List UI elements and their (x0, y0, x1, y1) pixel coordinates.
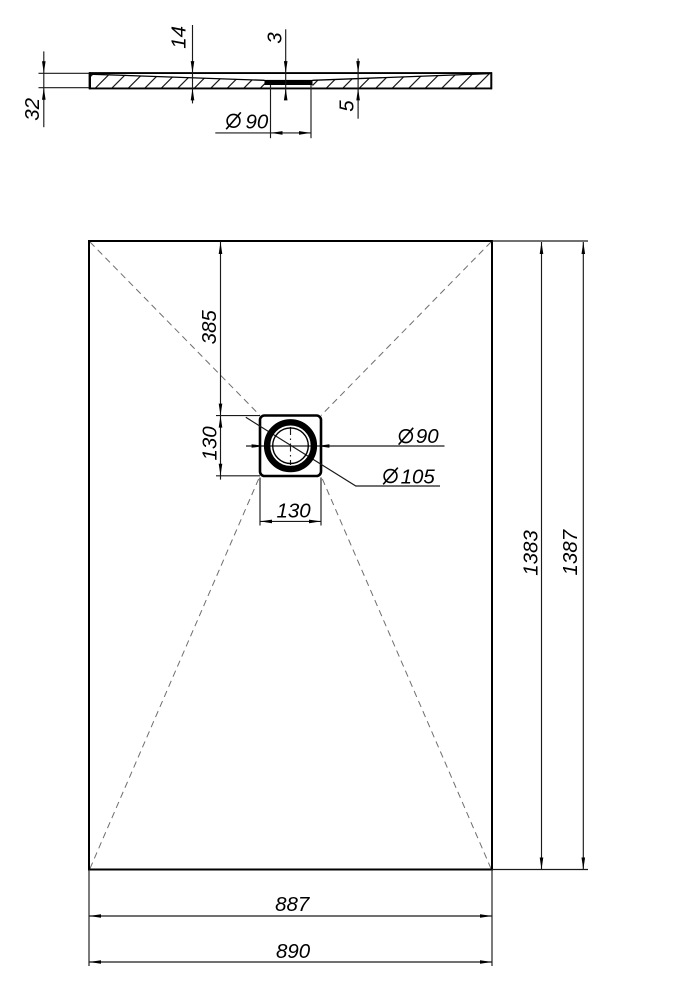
svg-text:105: 105 (401, 466, 436, 489)
svg-text:14: 14 (167, 26, 190, 49)
svg-text:1387: 1387 (559, 528, 582, 575)
svg-text:890: 890 (276, 940, 311, 963)
svg-text:32: 32 (21, 97, 44, 120)
svg-text:130: 130 (276, 499, 311, 522)
svg-text:887: 887 (275, 893, 311, 916)
svg-text:90: 90 (245, 111, 268, 134)
svg-text:1383: 1383 (520, 530, 543, 576)
svg-text:3: 3 (264, 32, 287, 44)
svg-text:130: 130 (199, 426, 222, 461)
svg-text:385: 385 (198, 310, 221, 345)
svg-text:90: 90 (416, 425, 439, 448)
svg-text:5: 5 (336, 100, 359, 112)
